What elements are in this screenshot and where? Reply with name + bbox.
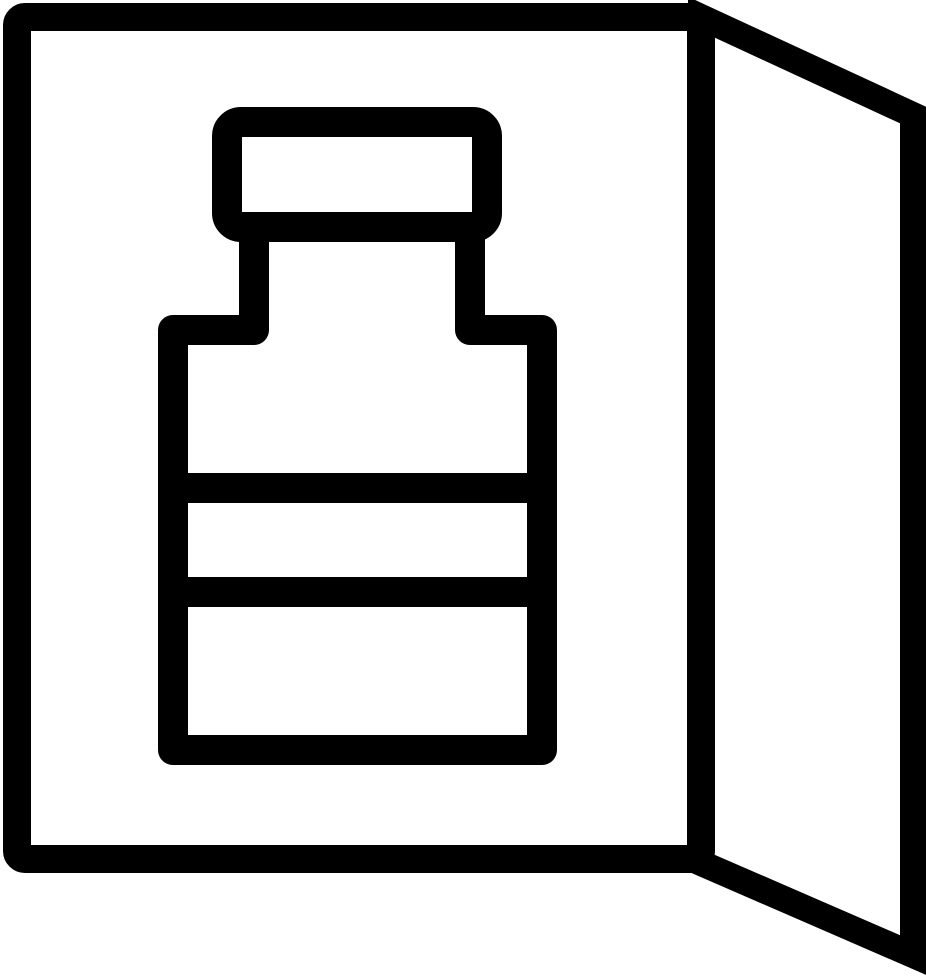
- medicine-box-icon-canvas: [0, 0, 926, 980]
- box-door-open-icon: [701, 17, 913, 955]
- bottle-cap-icon: [227, 122, 487, 227]
- open-medicine-box-with-bottle-icon: [0, 0, 926, 980]
